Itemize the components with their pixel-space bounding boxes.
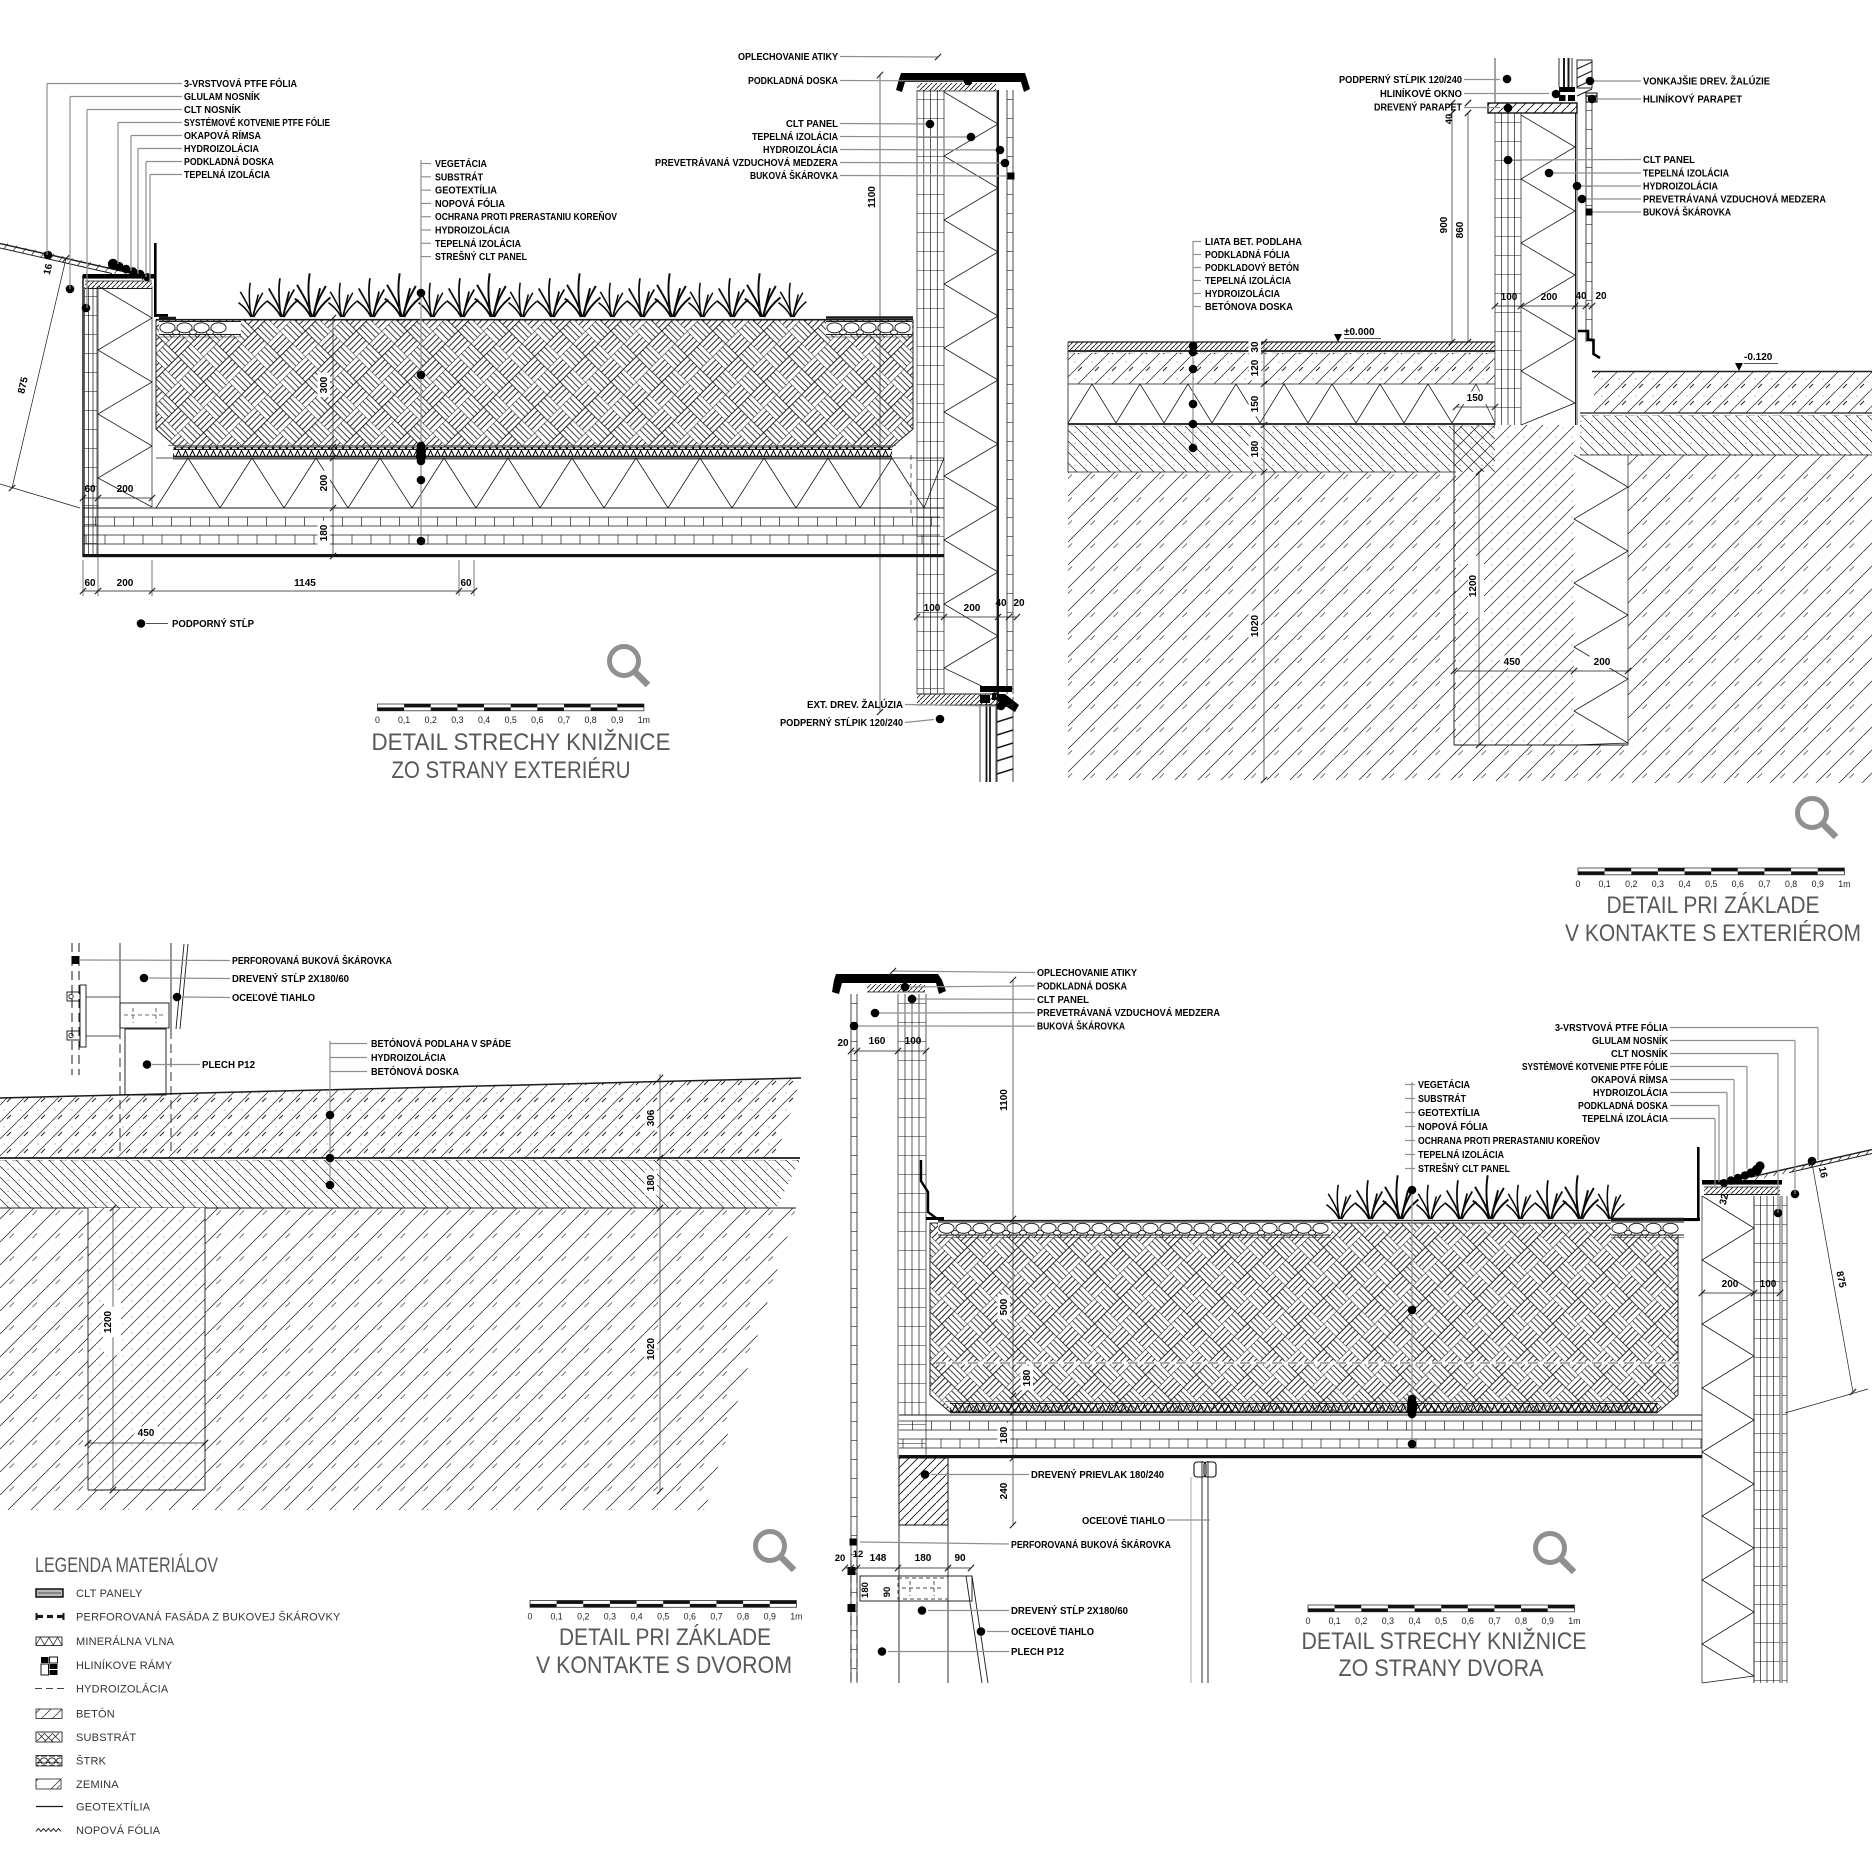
svg-text:40: 40	[995, 598, 1007, 609]
svg-text:1m: 1m	[790, 1612, 802, 1622]
svg-text:PODPERNÝ STĹPIK 120/240: PODPERNÝ STĹPIK 120/240	[1339, 73, 1462, 86]
svg-text:3-VRSTVOVÁ PTFE FÓLIA: 3-VRSTVOVÁ PTFE FÓLIA	[1555, 1021, 1668, 1034]
svg-text:20: 20	[835, 1553, 846, 1564]
svg-text:150: 150	[1250, 395, 1261, 412]
svg-text:DETAIL STRECHY KNIŽNICE: DETAIL STRECHY KNIŽNICE	[372, 729, 671, 756]
svg-text:0,2: 0,2	[1625, 879, 1637, 889]
svg-text:160: 160	[869, 1036, 886, 1047]
svg-text:CLT PANELY: CLT PANELY	[76, 1588, 143, 1600]
svg-text:TEPELNÁ IZOLÁCIA: TEPELNÁ IZOLÁCIA	[1582, 1112, 1668, 1125]
svg-text:20: 20	[1013, 598, 1025, 609]
svg-text:20: 20	[837, 1038, 849, 1049]
svg-text:OPLECHOVANIE ATIKY: OPLECHOVANIE ATIKY	[738, 51, 838, 63]
svg-text:0,9: 0,9	[764, 1612, 776, 1622]
svg-text:200: 200	[1722, 1279, 1739, 1290]
svg-text:PODKLADNÁ DOSKA: PODKLADNÁ DOSKA	[1037, 979, 1127, 992]
svg-text:0,1: 0,1	[398, 715, 410, 725]
svg-text:0,3: 0,3	[1652, 879, 1664, 889]
svg-text:0,7: 0,7	[558, 715, 570, 725]
svg-text:SYSTÉMOVÉ KOTVENIE PTFE FÓLIE: SYSTÉMOVÉ KOTVENIE PTFE FÓLIE	[1522, 1060, 1668, 1073]
svg-text:0,4: 0,4	[478, 715, 490, 725]
svg-text:HYDROIZOLÁCIA: HYDROIZOLÁCIA	[76, 1683, 169, 1696]
svg-text:DREVENÝ PARAPET: DREVENÝ PARAPET	[1374, 101, 1462, 114]
svg-text:TEPELNÁ IZOLÁCIA: TEPELNÁ IZOLÁCIA	[1205, 274, 1291, 287]
svg-text:180: 180	[1250, 440, 1261, 457]
svg-text:0,6: 0,6	[531, 715, 543, 725]
svg-text:1200: 1200	[103, 1310, 114, 1333]
svg-text:HYDROIZOLÁCIA: HYDROIZOLÁCIA	[1205, 287, 1280, 300]
svg-text:1100: 1100	[999, 1089, 1010, 1111]
svg-text:VEGETÁCIA: VEGETÁCIA	[1418, 1078, 1470, 1091]
svg-text:DREVENÝ STĹP 2X180/60: DREVENÝ STĹP 2X180/60	[1011, 1604, 1128, 1617]
svg-text:60: 60	[84, 578, 96, 589]
svg-text:PREVETRÁVANÁ VZDUCHOVÁ MEDZERA: PREVETRÁVANÁ VZDUCHOVÁ MEDZERA	[1643, 193, 1826, 206]
svg-text:CLT PANEL: CLT PANEL	[1643, 154, 1696, 166]
svg-text:NOPOVÁ FÓLIA: NOPOVÁ FÓLIA	[1418, 1120, 1488, 1133]
svg-text:PODKLADNÁ DOSKA: PODKLADNÁ DOSKA	[1578, 1099, 1668, 1112]
svg-text:20: 20	[1595, 291, 1607, 302]
svg-text:0: 0	[1576, 879, 1581, 889]
svg-text:0,9: 0,9	[1812, 879, 1824, 889]
svg-text:TEPELNÁ IZOLÁCIA: TEPELNÁ IZOLÁCIA	[752, 130, 838, 143]
svg-text:OCHRANA PROTI PRERASTANIU KORE: OCHRANA PROTI PRERASTANIU KOREŇOV	[1418, 1134, 1600, 1147]
svg-text:TEPELNÁ IZOLÁCIA: TEPELNÁ IZOLÁCIA	[184, 168, 270, 181]
svg-text:OKAPOVÁ RÍMSA: OKAPOVÁ RÍMSA	[1591, 1073, 1668, 1086]
svg-text:0,6: 0,6	[1462, 1616, 1474, 1626]
svg-text:STREŠNÝ CLT PANEL: STREŠNÝ CLT PANEL	[435, 250, 527, 263]
svg-text:PODKLADNÁ DOSKA: PODKLADNÁ DOSKA	[748, 74, 838, 87]
svg-text:180: 180	[915, 1553, 932, 1564]
svg-text:BETÓNOVÁ DOSKA: BETÓNOVÁ DOSKA	[371, 1065, 459, 1078]
svg-text:1020: 1020	[646, 1337, 657, 1360]
svg-text:HLINÍKOVÉ OKNO: HLINÍKOVÉ OKNO	[1380, 87, 1462, 100]
svg-text:CLT NOSNÍK: CLT NOSNÍK	[184, 103, 241, 116]
svg-text:60: 60	[460, 578, 472, 589]
svg-text:CLT NOSNÍK: CLT NOSNÍK	[1611, 1047, 1668, 1060]
svg-text:GEOTEXTÍLIA: GEOTEXTÍLIA	[1418, 1106, 1480, 1119]
svg-text:1m: 1m	[1568, 1616, 1580, 1626]
svg-text:BETÓNOVA DOSKA: BETÓNOVA DOSKA	[1205, 300, 1293, 313]
svg-text:100: 100	[1501, 292, 1518, 303]
svg-text:HYDROIZOLÁCIA: HYDROIZOLÁCIA	[184, 142, 259, 155]
svg-text:0,2: 0,2	[425, 715, 437, 725]
svg-text:-0.120: -0.120	[1744, 352, 1773, 363]
svg-text:0,6: 0,6	[1732, 879, 1744, 889]
svg-text:0,8: 0,8	[737, 1612, 749, 1622]
svg-text:0,9: 0,9	[611, 715, 623, 725]
svg-text:PERFOROVANÁ BUKOVÁ ŠKÁROVKA: PERFOROVANÁ BUKOVÁ ŠKÁROVKA	[1011, 1538, 1171, 1551]
svg-text:900: 900	[1439, 216, 1450, 233]
svg-text:40: 40	[1575, 291, 1587, 302]
svg-text:CLT PANEL: CLT PANEL	[786, 118, 839, 130]
svg-text:V KONTAKTE S DVOROM: V KONTAKTE S DVOROM	[536, 1652, 792, 1679]
svg-text:0,4: 0,4	[1408, 1616, 1420, 1626]
svg-text:OPLECHOVANIE ATIKY: OPLECHOVANIE ATIKY	[1037, 967, 1137, 979]
svg-text:0,7: 0,7	[710, 1612, 722, 1622]
svg-text:180: 180	[860, 1582, 871, 1598]
svg-text:OCEĽOVÉ TIAHLO: OCEĽOVÉ TIAHLO	[232, 991, 315, 1004]
svg-text:TEPELNÁ IZOLÁCIA: TEPELNÁ IZOLÁCIA	[1418, 1148, 1504, 1161]
svg-text:0,4: 0,4	[630, 1612, 642, 1622]
svg-text:90: 90	[882, 1587, 893, 1598]
svg-text:TEPELNÁ IZOLÁCIA: TEPELNÁ IZOLÁCIA	[435, 237, 521, 250]
svg-text:PERFOROVANÁ FASÁDA Z BUKOVEJ Š: PERFOROVANÁ FASÁDA Z BUKOVEJ ŠKÁROVKY	[76, 1611, 341, 1624]
svg-text:0,5: 0,5	[1705, 879, 1717, 889]
svg-text:HYDROIZOLÁCIA: HYDROIZOLÁCIA	[435, 224, 510, 237]
svg-text:BETÓNOVÁ PODLAHA V SPÁDE: BETÓNOVÁ PODLAHA V SPÁDE	[371, 1037, 511, 1050]
svg-text:SUBSTRÁT: SUBSTRÁT	[76, 1731, 136, 1744]
svg-text:0,1: 0,1	[1328, 1616, 1340, 1626]
svg-text:0,7: 0,7	[1758, 879, 1770, 889]
svg-text:PERFOROVANÁ BUKOVÁ ŠKÁROVKA: PERFOROVANÁ BUKOVÁ ŠKÁROVKA	[232, 954, 392, 967]
svg-text:LIATA BET. PODLAHA: LIATA BET. PODLAHA	[1205, 236, 1302, 248]
svg-text:DETAIL STRECHY KNIŽNICE: DETAIL STRECHY KNIŽNICE	[1302, 1628, 1587, 1655]
svg-text:OCHRANA PROTI PRERASTANIU KORE: OCHRANA PROTI PRERASTANIU KOREŇOV	[435, 210, 617, 223]
svg-text:450: 450	[138, 1428, 155, 1439]
svg-text:SUBSTRÁT: SUBSTRÁT	[1418, 1092, 1466, 1105]
svg-text:GEOTEXTÍLIA: GEOTEXTÍLIA	[435, 184, 497, 197]
svg-text:HLINÍKOVÝ PARAPET: HLINÍKOVÝ PARAPET	[1643, 93, 1743, 106]
svg-text:180: 180	[319, 524, 330, 541]
svg-text:30: 30	[1250, 341, 1261, 353]
svg-text:0,5: 0,5	[657, 1612, 669, 1622]
svg-text:200: 200	[117, 484, 134, 495]
svg-text:148: 148	[870, 1553, 887, 1564]
svg-text:1m: 1m	[638, 715, 650, 725]
svg-text:CLT PANEL: CLT PANEL	[1037, 994, 1090, 1006]
svg-text:TEPELNÁ IZOLÁCIA: TEPELNÁ IZOLÁCIA	[1643, 167, 1729, 180]
svg-text:DETAIL PRI ZÁKLADE: DETAIL PRI ZÁKLADE	[1607, 892, 1820, 919]
svg-text:0,8: 0,8	[1515, 1616, 1527, 1626]
svg-text:1200: 1200	[1468, 574, 1479, 597]
svg-text:PODPERNÝ STĹPIK 120/240: PODPERNÝ STĹPIK 120/240	[780, 716, 903, 729]
svg-text:500: 500	[999, 1298, 1010, 1315]
svg-text:200: 200	[117, 578, 134, 589]
svg-text:1100: 1100	[867, 186, 878, 208]
svg-text:860: 860	[1455, 221, 1466, 238]
svg-text:1145: 1145	[294, 578, 316, 589]
svg-text:HYDROIZOLÁCIA: HYDROIZOLÁCIA	[1643, 180, 1718, 193]
svg-text:ZO STRANY EXTERIÉRU: ZO STRANY EXTERIÉRU	[392, 757, 631, 784]
svg-text:VONKAJŠIE DREV. ŽALÚZIE: VONKAJŠIE DREV. ŽALÚZIE	[1643, 75, 1770, 88]
svg-text:GLULAM NOSNÍK: GLULAM NOSNÍK	[1592, 1034, 1668, 1047]
svg-text:SUBSTRÁT: SUBSTRÁT	[435, 170, 483, 183]
svg-text:0,9: 0,9	[1542, 1616, 1554, 1626]
svg-text:200: 200	[319, 474, 330, 491]
svg-text:V KONTAKTE S EXTERIÉROM: V KONTAKTE S EXTERIÉROM	[1565, 920, 1861, 947]
svg-text:120: 120	[1250, 359, 1261, 376]
svg-text:0,3: 0,3	[451, 715, 463, 725]
svg-text:STREŠNÝ CLT PANEL: STREŠNÝ CLT PANEL	[1418, 1162, 1510, 1175]
svg-text:306: 306	[646, 1109, 657, 1126]
svg-text:200: 200	[964, 603, 981, 614]
svg-text:180: 180	[999, 1426, 1010, 1443]
svg-text:240: 240	[999, 1482, 1010, 1499]
svg-text:OCEĽOVÉ TIAHLO: OCEĽOVÉ TIAHLO	[1082, 1514, 1165, 1527]
svg-text:BETÓN: BETÓN	[76, 1708, 115, 1721]
svg-text:0,2: 0,2	[1355, 1616, 1367, 1626]
svg-text:0,7: 0,7	[1488, 1616, 1500, 1626]
svg-text:HYDROIZOLÁCIA: HYDROIZOLÁCIA	[1593, 1086, 1668, 1099]
svg-text:EXT. DREV. ŽALÚZIA: EXT. DREV. ŽALÚZIA	[807, 698, 903, 711]
svg-text:100: 100	[905, 1036, 922, 1047]
svg-text:1020: 1020	[1250, 614, 1261, 637]
svg-text:PREVETRÁVANÁ VZDUCHOVÁ MEDZERA: PREVETRÁVANÁ VZDUCHOVÁ MEDZERA	[1037, 1006, 1220, 1019]
svg-text:BUKOVÁ ŠKÁROVKA: BUKOVÁ ŠKÁROVKA	[1643, 206, 1731, 219]
svg-text:0,1: 0,1	[550, 1612, 562, 1622]
svg-text:HYDROIZOLÁCIA: HYDROIZOLÁCIA	[371, 1051, 446, 1064]
svg-text:0: 0	[375, 715, 380, 725]
svg-text:NOPOVÁ FÓLIA: NOPOVÁ FÓLIA	[435, 197, 505, 210]
svg-text:ZEMINA: ZEMINA	[76, 1779, 119, 1791]
svg-text:MINERÁLNA VLNA: MINERÁLNA VLNA	[76, 1635, 175, 1648]
svg-text:150: 150	[1467, 393, 1484, 404]
svg-text:ŠTRK: ŠTRK	[76, 1755, 107, 1768]
svg-text:PODPORNÝ STĹP: PODPORNÝ STĹP	[172, 617, 254, 630]
svg-text:60: 60	[84, 484, 96, 495]
svg-text:BUKOVÁ ŠKÁROVKA: BUKOVÁ ŠKÁROVKA	[750, 169, 838, 182]
svg-text:HLINÍKOVE RÁMY: HLINÍKOVE RÁMY	[76, 1659, 173, 1672]
svg-text:100: 100	[1760, 1279, 1777, 1290]
svg-text:0,3: 0,3	[604, 1612, 616, 1622]
svg-text:100: 100	[924, 603, 941, 614]
svg-text:0,3: 0,3	[1382, 1616, 1394, 1626]
svg-text:0,8: 0,8	[584, 715, 596, 725]
svg-text:DREVENÝ PRIEVLAK 180/240: DREVENÝ PRIEVLAK 180/240	[1031, 1468, 1164, 1481]
svg-text:0: 0	[528, 1612, 533, 1622]
svg-text:PODKLADNÁ DOSKA: PODKLADNÁ DOSKA	[184, 155, 274, 168]
svg-text:180: 180	[1022, 1369, 1033, 1386]
svg-text:PODKLADOVÝ BETÓN: PODKLADOVÝ BETÓN	[1205, 261, 1299, 274]
svg-text:90: 90	[954, 1553, 966, 1564]
svg-text:SYSTÉMOVÉ KOTVENIE PTFE FÓLIE: SYSTÉMOVÉ KOTVENIE PTFE FÓLIE	[184, 116, 330, 129]
svg-text:DREVENÝ STĹP 2X180/60: DREVENÝ STĹP 2X180/60	[232, 972, 349, 985]
svg-text:PODKLADNÁ FÓLIA: PODKLADNÁ FÓLIA	[1205, 248, 1290, 261]
svg-text:OKAPOVÁ RÍMSA: OKAPOVÁ RÍMSA	[184, 129, 261, 142]
svg-text:PLECH P12: PLECH P12	[202, 1059, 255, 1071]
svg-text:NOPOVÁ FÓLIA: NOPOVÁ FÓLIA	[76, 1824, 161, 1837]
svg-text:12: 12	[853, 1549, 864, 1560]
svg-text:ZO STRANY DVORA: ZO STRANY DVORA	[1339, 1655, 1545, 1682]
svg-text:0,4: 0,4	[1678, 879, 1690, 889]
svg-text:180: 180	[646, 1174, 657, 1191]
svg-text:0,6: 0,6	[684, 1612, 696, 1622]
svg-text:±0.000: ±0.000	[1344, 327, 1375, 338]
svg-text:LEGENDA MATERIÁLOV: LEGENDA MATERIÁLOV	[35, 1554, 218, 1577]
svg-text:0,2: 0,2	[577, 1612, 589, 1622]
svg-text:0,5: 0,5	[505, 715, 517, 725]
svg-text:450: 450	[1504, 657, 1521, 668]
svg-text:0,5: 0,5	[1435, 1616, 1447, 1626]
svg-text:200: 200	[1594, 657, 1611, 668]
svg-text:200: 200	[1541, 292, 1558, 303]
svg-text:PLECH P12: PLECH P12	[1011, 1646, 1064, 1658]
svg-text:VEGETÁCIA: VEGETÁCIA	[435, 157, 487, 170]
svg-text:0,1: 0,1	[1598, 879, 1610, 889]
svg-text:PREVETRÁVANÁ VZDUCHOVÁ MEDZERA: PREVETRÁVANÁ VZDUCHOVÁ MEDZERA	[655, 156, 838, 169]
svg-text:0,8: 0,8	[1785, 879, 1797, 889]
svg-text:300: 300	[319, 376, 330, 393]
svg-text:DETAIL PRI ZÁKLADE: DETAIL PRI ZÁKLADE	[559, 1624, 771, 1651]
svg-text:0: 0	[1306, 1616, 1311, 1626]
svg-text:HYDROIZOLÁCIA: HYDROIZOLÁCIA	[763, 143, 838, 156]
svg-text:3-VRSTVOVÁ PTFE FÓLIA: 3-VRSTVOVÁ PTFE FÓLIA	[184, 77, 297, 90]
svg-text:BUKOVÁ ŠKÁROVKA: BUKOVÁ ŠKÁROVKA	[1037, 1020, 1125, 1033]
svg-text:1m: 1m	[1838, 879, 1850, 889]
svg-text:OCEĽOVÉ TIAHLO: OCEĽOVÉ TIAHLO	[1011, 1625, 1094, 1638]
svg-text:GLULAM NOSNÍK: GLULAM NOSNÍK	[184, 90, 260, 103]
svg-text:GEOTEXTÍLIA: GEOTEXTÍLIA	[76, 1801, 151, 1814]
